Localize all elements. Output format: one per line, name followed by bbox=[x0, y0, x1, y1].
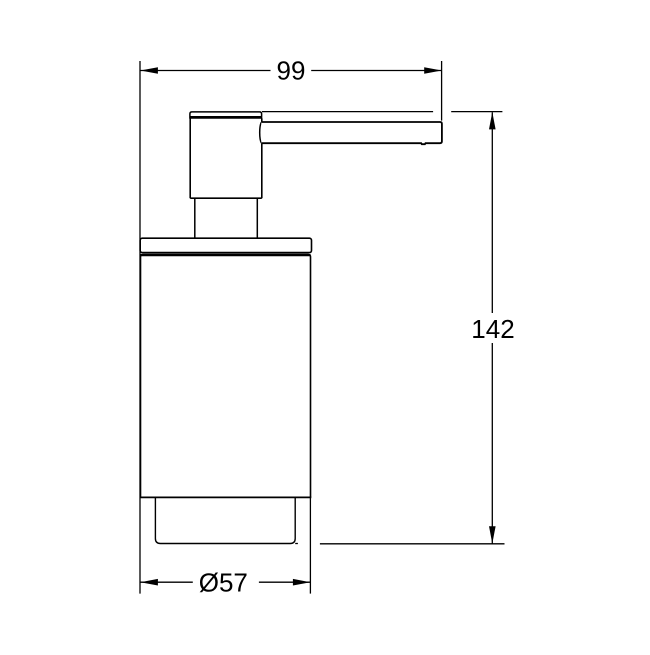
svg-text:Ø57: Ø57 bbox=[199, 568, 248, 598]
svg-text:99: 99 bbox=[277, 56, 306, 86]
svg-text:142: 142 bbox=[471, 314, 514, 344]
